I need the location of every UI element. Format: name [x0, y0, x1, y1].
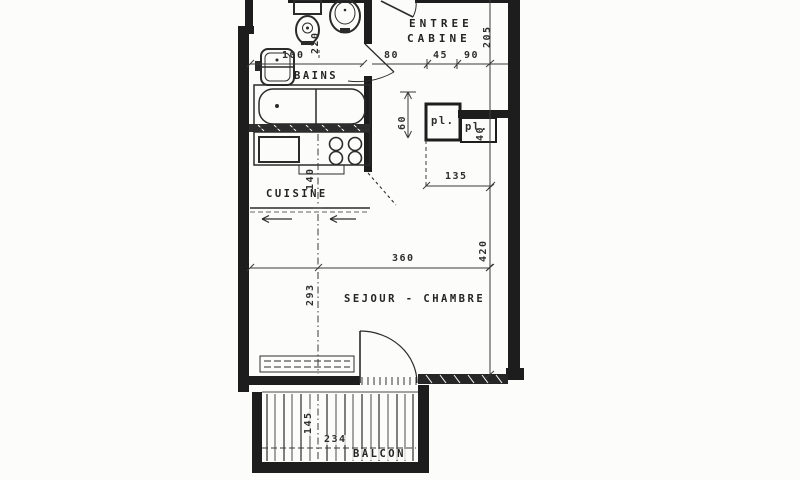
dim-cuisine-depth: 140 [306, 167, 316, 190]
room-label-balcon: BALCON [351, 449, 408, 460]
stove-fixture [330, 138, 362, 165]
room-label-bains: BAINS [294, 71, 338, 82]
balcony-threshold [362, 377, 416, 385]
dim-wc-zone-depth: 220 [311, 31, 321, 54]
entry-door-swing [381, 1, 416, 17]
dim-entree-seg-b: 45 [433, 51, 448, 61]
closet1-label: pl. [431, 116, 454, 127]
dim-closet-offset: 60 [398, 115, 408, 130]
dim-entree-seg-a: 80 [384, 51, 399, 61]
dim-balcon-depth: 145 [304, 409, 314, 436]
room-label-entree-line2: CABINE [407, 33, 471, 44]
dim-sejour-width: 360 [392, 254, 415, 264]
room-label-cuisine: CUISINE [266, 189, 328, 200]
floor-plan-drawing [0, 0, 800, 480]
window-band-left [260, 356, 354, 372]
room-label-sejour: SEJOUR - CHAMBRE [344, 294, 485, 305]
walls [238, 0, 524, 473]
balcony-door-swing [360, 331, 417, 383]
dim-closets-width: 135 [445, 172, 468, 182]
sink-fixture [259, 137, 299, 162]
window-band-right [418, 374, 508, 384]
dim-balcon-width: 234 [322, 435, 349, 445]
dim-apartment-depth: 420 [479, 239, 489, 262]
dim-entree-depth: 205 [483, 25, 493, 48]
bidet-fixture [330, 0, 360, 33]
dim-bains-width: 100 [282, 51, 305, 61]
bathtub-fixture [254, 85, 370, 128]
dim-entree-seg-c: 90 [464, 51, 479, 61]
dim-sejour-depth: 293 [306, 283, 316, 306]
dim-closet2-depth: 40 [476, 126, 486, 141]
floor-plan-scan: ENTREE CABINE BAINS CUISINE SEJOUR - CHA… [0, 0, 800, 480]
room-label-entree-line1: ENTREE [409, 18, 473, 29]
dimension-lines [247, 0, 508, 460]
